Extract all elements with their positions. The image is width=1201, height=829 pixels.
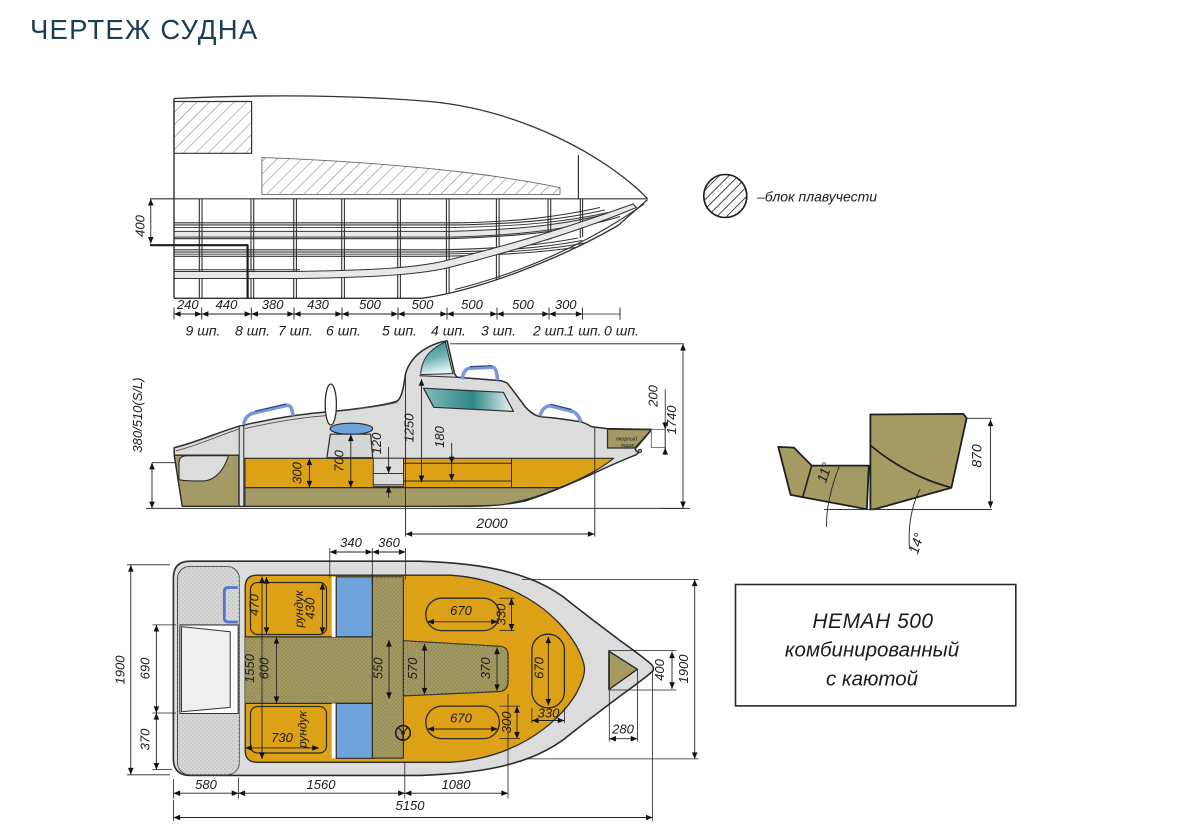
svg-text:500: 500 <box>461 297 483 312</box>
svg-text:НЕМАН 500: НЕМАН 500 <box>812 610 933 633</box>
svg-text:690: 690 <box>138 657 153 679</box>
svg-text:500: 500 <box>359 297 381 312</box>
svg-text:380/510(S/L): 380/510(S/L) <box>130 377 145 452</box>
svg-text:340: 340 <box>340 535 362 550</box>
svg-text:670: 670 <box>450 603 472 618</box>
svg-text:рундук: рундук <box>296 710 310 749</box>
svg-text:2 шп.: 2 шп. <box>532 323 568 339</box>
svg-text:670: 670 <box>532 656 547 678</box>
svg-text:рундук: рундук <box>292 589 306 628</box>
svg-text:1 шп.: 1 шп. <box>567 323 602 339</box>
svg-text:870: 870 <box>969 444 985 468</box>
svg-text:1080: 1080 <box>442 777 472 792</box>
svg-text:370: 370 <box>138 728 153 750</box>
svg-text:1250: 1250 <box>402 413 417 443</box>
svg-text:730: 730 <box>271 730 293 745</box>
svg-text:360: 360 <box>378 535 400 550</box>
svg-text:6 шп.: 6 шп. <box>326 323 361 339</box>
svg-text:9 шп.: 9 шп. <box>186 323 221 339</box>
svg-text:2000: 2000 <box>475 515 507 531</box>
svg-text:470: 470 <box>247 593 262 615</box>
svg-text:1740: 1740 <box>664 405 679 435</box>
svg-text:с каютой: с каютой <box>826 668 918 691</box>
svg-text:ящик: ящик <box>620 443 634 449</box>
svg-text:580: 580 <box>195 777 217 792</box>
svg-text:комбинированный: комбинированный <box>785 639 959 662</box>
svg-text:1560: 1560 <box>307 777 337 792</box>
svg-text:370: 370 <box>478 657 493 679</box>
svg-text:280: 280 <box>611 722 634 737</box>
svg-text:570: 570 <box>405 657 420 679</box>
svg-text:500: 500 <box>412 297 434 312</box>
svg-text:330: 330 <box>538 706 560 721</box>
svg-text:1900: 1900 <box>676 654 691 684</box>
svg-text:500: 500 <box>512 297 534 312</box>
svg-text:1550: 1550 <box>242 653 257 683</box>
svg-text:300: 300 <box>555 297 577 312</box>
svg-text:300: 300 <box>290 461 305 483</box>
svg-text:1900: 1900 <box>113 655 128 685</box>
svg-text:550: 550 <box>371 657 386 679</box>
svg-text:330: 330 <box>494 603 509 625</box>
svg-text:600: 600 <box>257 657 272 679</box>
svg-text:3 шп.: 3 шп. <box>481 323 516 339</box>
svg-text:180: 180 <box>432 425 447 447</box>
svg-text:380: 380 <box>262 297 284 312</box>
svg-text:ЧЕРТЕЖ СУДНА: ЧЕРТЕЖ СУДНА <box>30 14 258 45</box>
svg-text:430: 430 <box>307 297 329 312</box>
svg-text:700: 700 <box>332 449 347 471</box>
svg-text:0 шп.: 0 шп. <box>604 323 639 339</box>
svg-text:4 шп.: 4 шп. <box>431 323 466 339</box>
svg-text:200: 200 <box>646 384 661 407</box>
svg-text:якорный: якорный <box>615 436 637 443</box>
svg-text:400: 400 <box>652 658 667 680</box>
svg-text:5 шп.: 5 шп. <box>382 323 417 339</box>
svg-text:120: 120 <box>369 432 384 454</box>
svg-text:670: 670 <box>450 711 472 726</box>
svg-text:7 шп.: 7 шп. <box>278 323 313 339</box>
svg-text:300: 300 <box>499 711 514 733</box>
svg-text:8 шп.: 8 шп. <box>235 323 270 339</box>
svg-text:440: 440 <box>216 297 238 312</box>
svg-text:240: 240 <box>176 297 199 312</box>
svg-text:14°: 14° <box>905 531 927 556</box>
svg-text:400: 400 <box>133 214 148 236</box>
svg-text:–блок плавучести: –блок плавучести <box>756 189 877 205</box>
svg-text:5150: 5150 <box>396 798 426 813</box>
